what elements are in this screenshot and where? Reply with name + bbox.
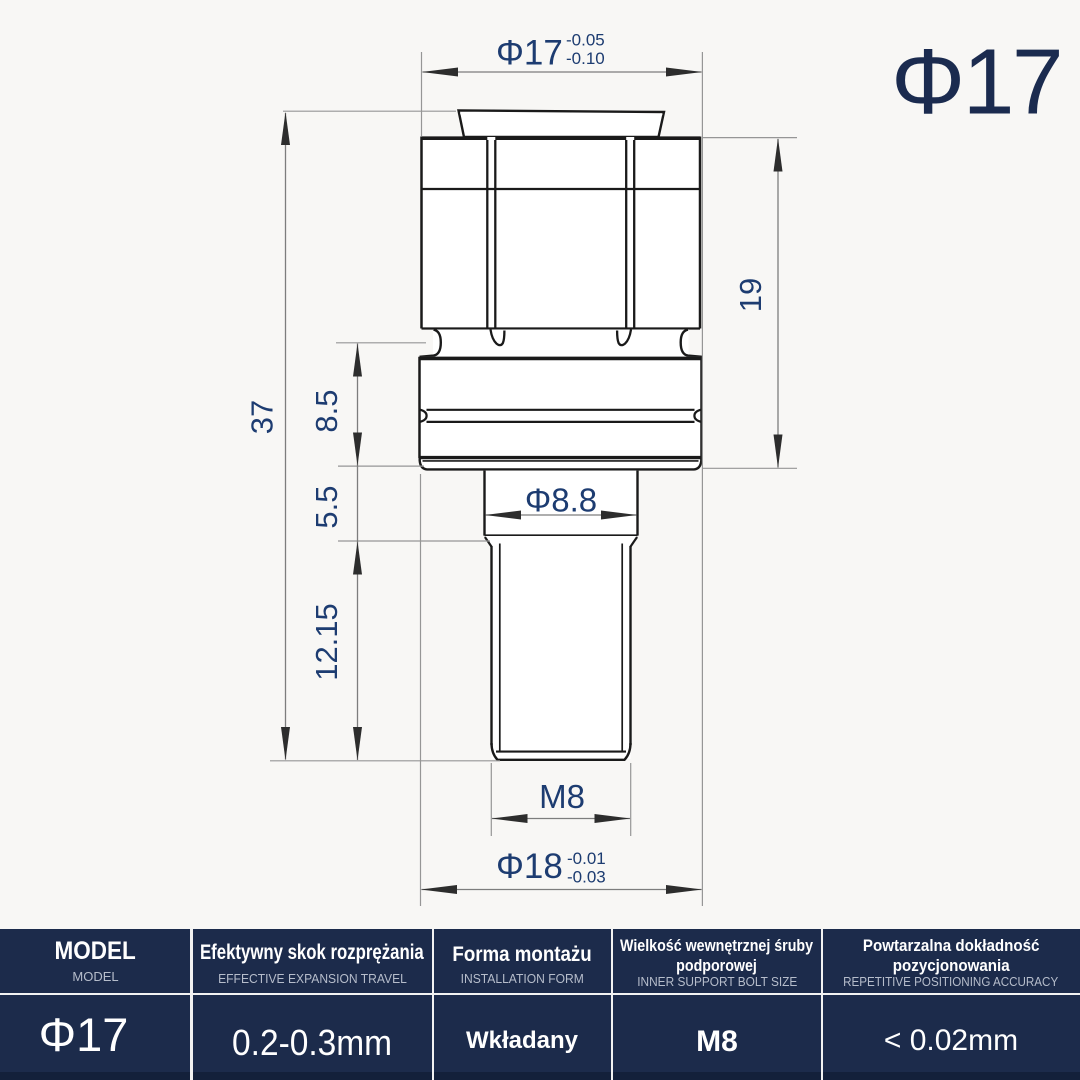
svg-text:-0.05: -0.05 <box>566 31 605 50</box>
svg-text:37: 37 <box>245 400 280 434</box>
svg-text:-0.01: -0.01 <box>567 849 606 868</box>
svg-text:19: 19 <box>733 278 768 312</box>
svg-text:-0.10: -0.10 <box>566 49 605 68</box>
svg-text:Φ8.8: Φ8.8 <box>525 482 597 519</box>
svg-text:8.5: 8.5 <box>309 389 344 432</box>
svg-text:Φ18: Φ18 <box>496 847 563 886</box>
svg-text:5.5: 5.5 <box>309 485 344 528</box>
svg-text:-0.03: -0.03 <box>567 868 606 887</box>
svg-text:M8: M8 <box>539 778 585 815</box>
svg-text:Φ17: Φ17 <box>496 34 563 73</box>
svg-text:12.15: 12.15 <box>309 603 344 681</box>
